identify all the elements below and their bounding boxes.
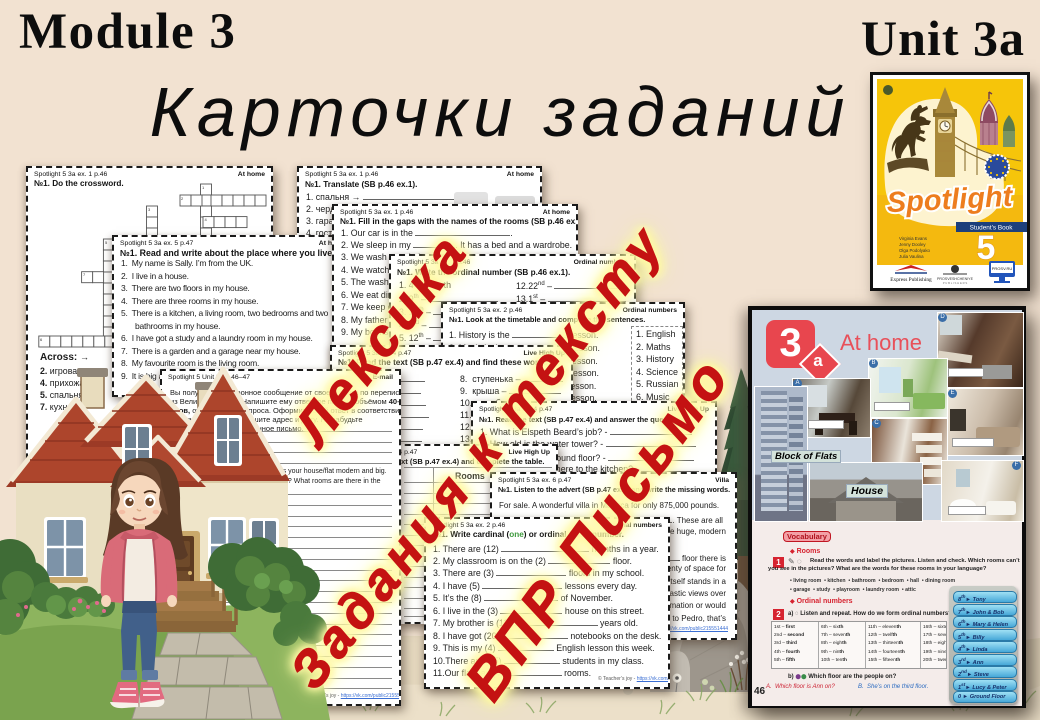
svg-text:Spotlight: Spotlight (886, 181, 1014, 220)
svg-text:Virginia Evans: Virginia Evans (899, 236, 928, 241)
svg-text:Julia Vaulina: Julia Vaulina (899, 254, 924, 259)
svg-text:Jenny Dooley: Jenny Dooley (899, 242, 926, 247)
svg-text:PROSV.RU: PROSV.RU (992, 266, 1013, 271)
svg-text:Express Publishing: Express Publishing (890, 277, 932, 283)
svg-text:P U B L I S H E R S: P U B L I S H E R S (943, 281, 968, 285)
svg-text:Olga Podolyako: Olga Podolyako (899, 248, 931, 253)
